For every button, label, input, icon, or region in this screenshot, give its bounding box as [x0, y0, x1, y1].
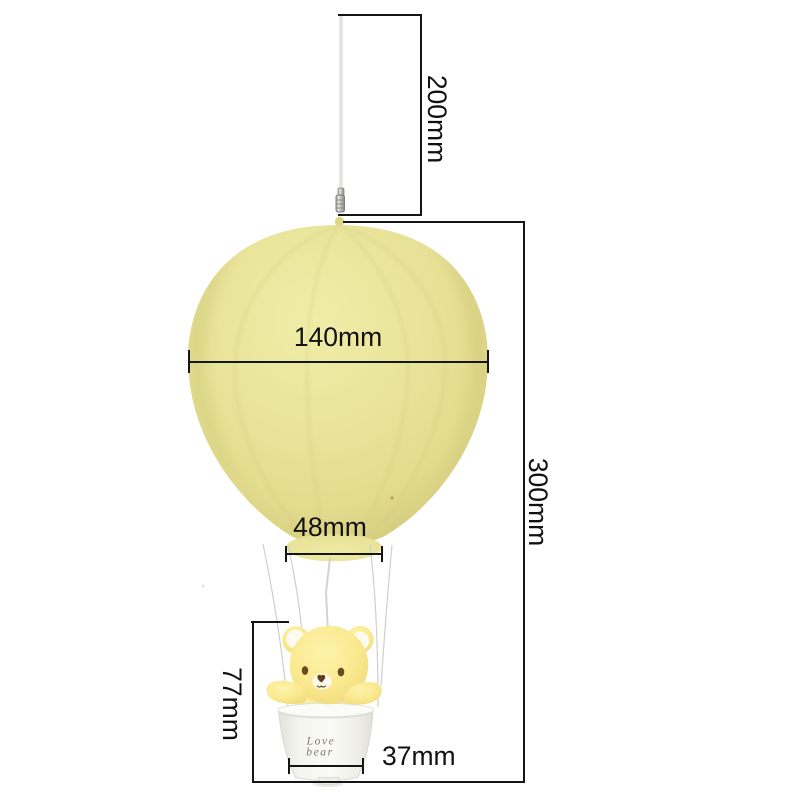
svg-text:300mm: 300mm: [523, 458, 553, 546]
svg-text:37mm: 37mm: [382, 741, 456, 771]
svg-text:200mm: 200mm: [422, 75, 452, 163]
svg-text:77mm: 77mm: [217, 667, 247, 741]
svg-text:140mm: 140mm: [294, 322, 382, 352]
svg-text:48mm: 48mm: [293, 512, 367, 542]
svg-text:bear: bear: [306, 747, 333, 759]
